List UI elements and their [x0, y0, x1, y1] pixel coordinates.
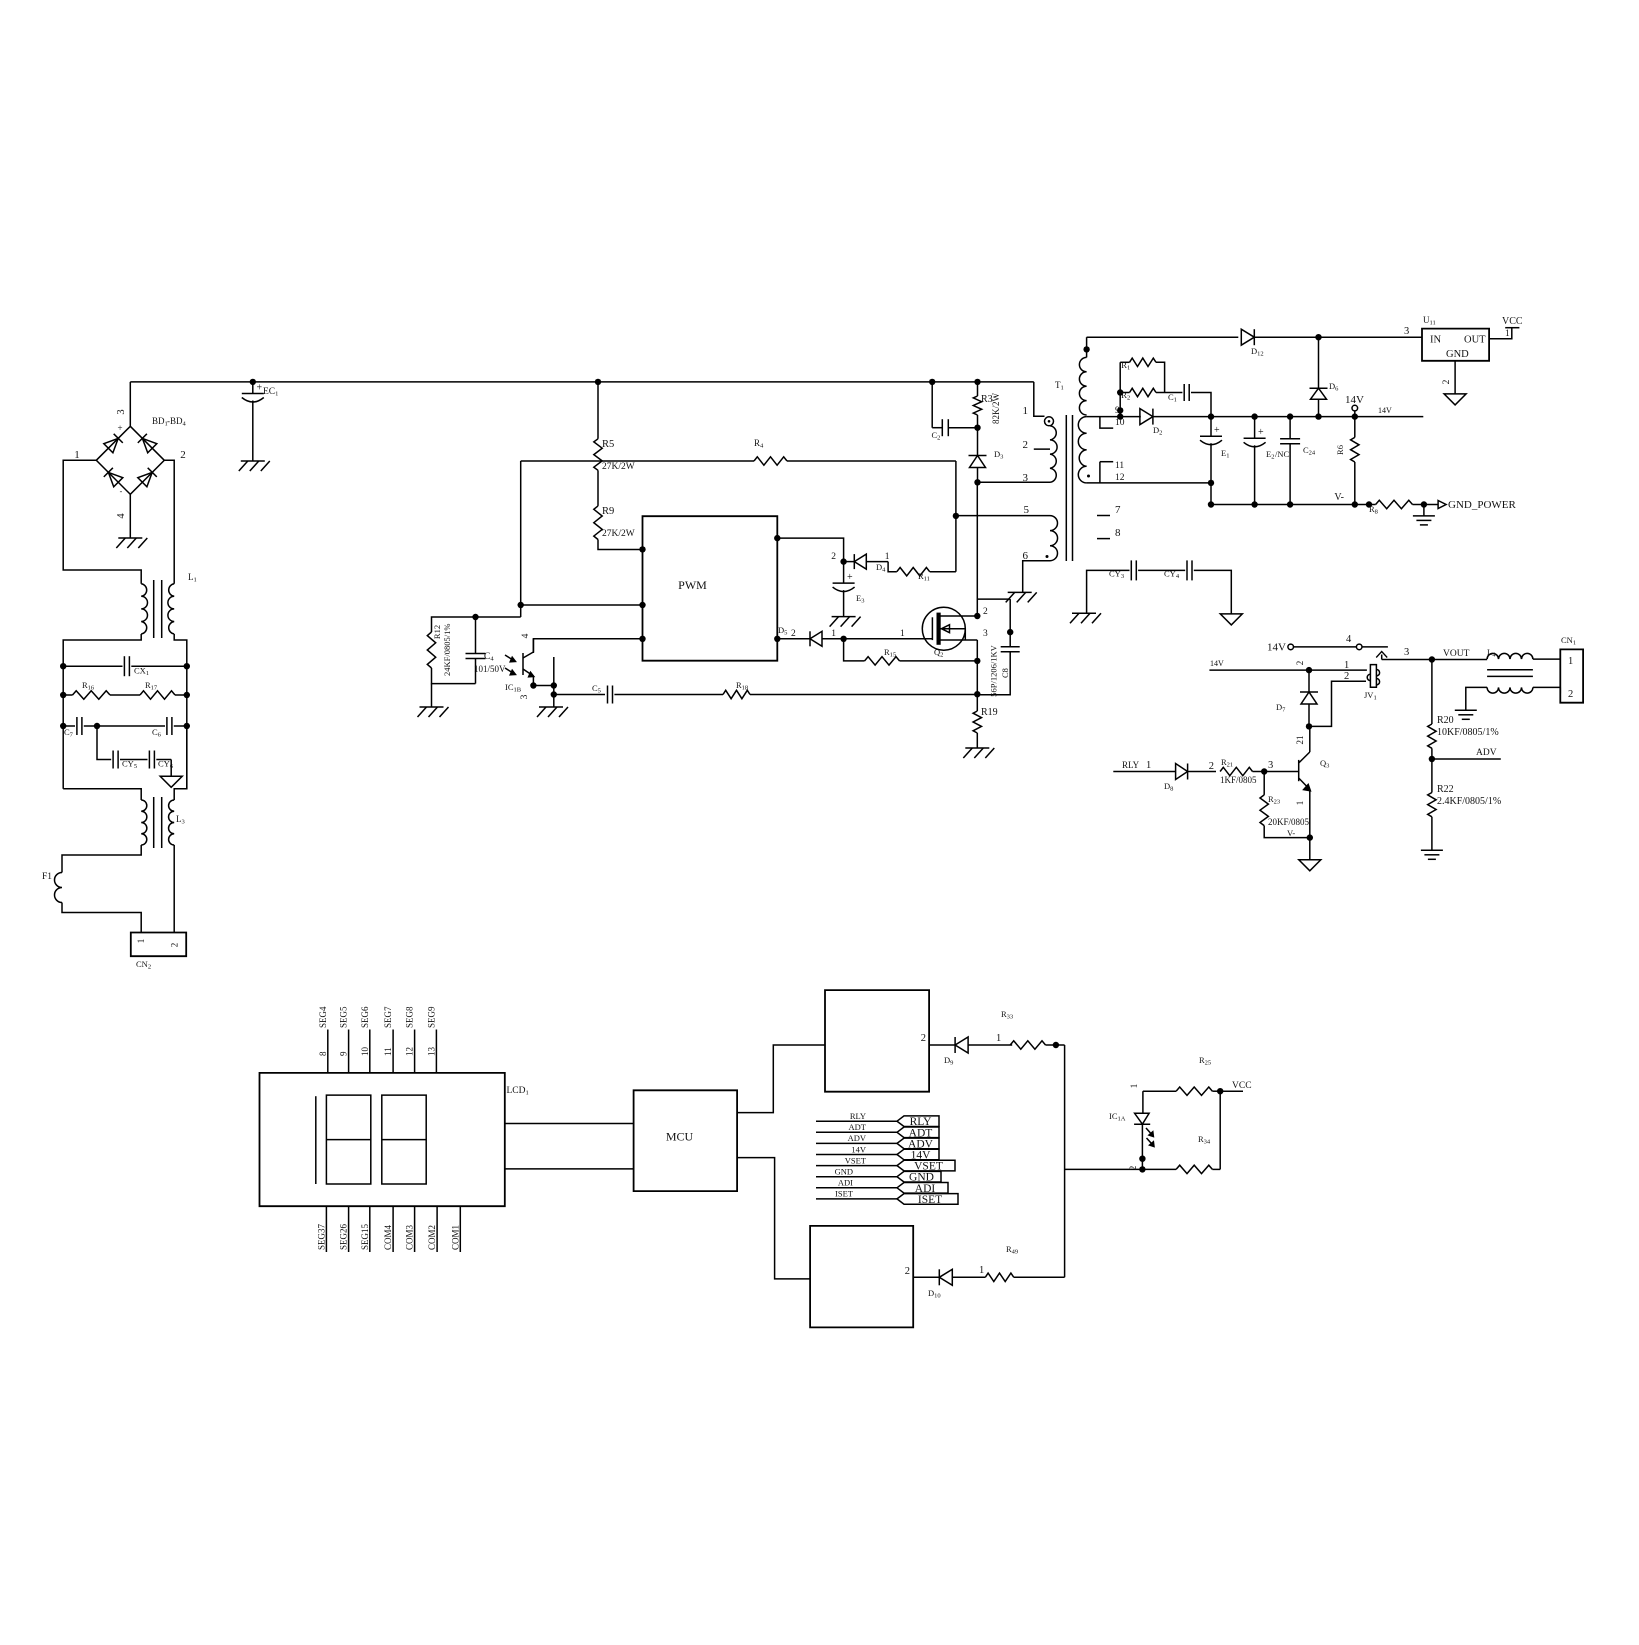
svg-text:2: 2	[170, 943, 180, 948]
svg-text:2: 2	[1023, 439, 1029, 451]
svg-text:1KF/0805: 1KF/0805	[1220, 775, 1257, 785]
svg-text:R6: R6	[1335, 445, 1345, 455]
svg-text:R9: R9	[602, 506, 614, 517]
svg-text:13: 13	[426, 1047, 436, 1057]
svg-text:SEG37: SEG37	[316, 1223, 326, 1250]
svg-text:COM3: COM3	[405, 1224, 415, 1250]
svg-text:24KF/0805/1%: 24KF/0805/1%	[442, 624, 452, 676]
svg-text:3: 3	[116, 409, 127, 414]
svg-text:GND: GND	[1446, 349, 1469, 360]
svg-text:SEG15: SEG15	[360, 1223, 370, 1250]
svg-text:3: 3	[983, 629, 988, 639]
svg-text:20KF/0805: 20KF/0805	[1268, 817, 1310, 827]
svg-text:4: 4	[116, 513, 127, 519]
svg-text:R20: R20	[1437, 715, 1454, 726]
svg-text:1: 1	[885, 552, 890, 562]
svg-text:/NC: /NC	[1275, 449, 1290, 459]
svg-text:1: 1	[1129, 1084, 1139, 1089]
svg-text:GND: GND	[835, 1167, 853, 1177]
svg-text:27K/2W: 27K/2W	[602, 462, 635, 472]
svg-text:R22: R22	[1437, 784, 1454, 795]
svg-text:LCD1: LCD1	[507, 1086, 529, 1097]
svg-text:1: 1	[1505, 329, 1510, 339]
svg-text:3: 3	[1404, 647, 1409, 658]
svg-text:RLY: RLY	[850, 1111, 866, 1121]
svg-text:2: 2	[1568, 689, 1573, 700]
svg-text:14V: 14V	[1378, 406, 1392, 415]
svg-text:PWM: PWM	[678, 578, 707, 592]
svg-text:14V: 14V	[1345, 394, 1364, 406]
svg-text:2: 2	[1344, 671, 1349, 682]
svg-text:-: -	[120, 487, 123, 496]
svg-text:2: 2	[1295, 661, 1305, 666]
svg-text:SEG4: SEG4	[318, 1006, 328, 1028]
svg-text:82K/2W: 82K/2W	[991, 393, 1001, 425]
svg-text:2.4KF/0805/1%: 2.4KF/0805/1%	[1437, 796, 1501, 807]
svg-text:COM1: COM1	[450, 1225, 460, 1250]
svg-text:C8: C8	[1000, 668, 1010, 678]
svg-text:4: 4	[521, 633, 531, 638]
svg-text:VSET: VSET	[845, 1155, 867, 1165]
svg-text:1: 1	[900, 629, 905, 639]
svg-text:+: +	[1214, 425, 1220, 436]
svg-text:+: +	[1258, 427, 1264, 438]
svg-text:+: +	[117, 423, 122, 433]
svg-text:GND_POWER: GND_POWER	[1448, 499, 1516, 511]
svg-text:101/50V: 101/50V	[474, 664, 506, 674]
svg-text:ADT: ADT	[849, 1122, 867, 1132]
svg-text:9: 9	[339, 1051, 349, 1056]
svg-text:SEG26: SEG26	[339, 1223, 349, 1250]
svg-text:8: 8	[318, 1051, 328, 1056]
svg-text:V-: V-	[1334, 492, 1344, 503]
svg-text:ADV: ADV	[1476, 748, 1497, 758]
svg-text:10KF/0805/1%: 10KF/0805/1%	[1437, 727, 1499, 738]
svg-text:VCC: VCC	[1502, 316, 1523, 327]
svg-text:21: 21	[1295, 736, 1305, 745]
svg-text:2: 2	[921, 1033, 926, 1044]
svg-text:VOUT: VOUT	[1443, 649, 1470, 659]
svg-text:RLY: RLY	[1122, 760, 1140, 770]
svg-text:10: 10	[360, 1047, 370, 1057]
svg-text:14V: 14V	[851, 1144, 867, 1154]
svg-text:2: 2	[791, 629, 796, 639]
svg-text:3: 3	[1023, 472, 1029, 484]
svg-text:+: +	[847, 572, 853, 583]
svg-text:F1: F1	[42, 872, 52, 882]
svg-text:ADI: ADI	[838, 1178, 853, 1188]
svg-text:1: 1	[74, 449, 80, 461]
svg-text:SEG5: SEG5	[339, 1006, 349, 1028]
svg-text:MCU: MCU	[666, 1130, 694, 1144]
svg-text:14V: 14V	[1267, 642, 1286, 654]
svg-text:1: 1	[979, 1265, 984, 1276]
svg-text:27K/2W: 27K/2W	[602, 529, 635, 539]
svg-text:11: 11	[383, 1047, 393, 1056]
svg-text:SEG6: SEG6	[360, 1006, 370, 1028]
svg-text:R19: R19	[981, 707, 998, 718]
svg-text:1: 1	[1568, 656, 1573, 667]
svg-text:3: 3	[1268, 760, 1273, 771]
svg-text:6: 6	[1023, 550, 1029, 562]
svg-text:2: 2	[1442, 379, 1452, 384]
svg-text:1: 1	[136, 939, 146, 944]
svg-text:V-: V-	[1287, 828, 1295, 838]
svg-text:1: 1	[1344, 660, 1349, 671]
svg-text:5: 5	[1024, 504, 1030, 516]
svg-text:R5: R5	[602, 439, 614, 450]
svg-text:SEG7: SEG7	[383, 1006, 393, 1028]
svg-text:1: 1	[1146, 760, 1151, 771]
svg-text:2: 2	[983, 607, 988, 617]
svg-text:2: 2	[831, 552, 836, 562]
svg-text:2: 2	[1128, 1166, 1138, 1171]
svg-text:2: 2	[1209, 761, 1214, 772]
svg-text:ISET: ISET	[835, 1189, 854, 1199]
svg-text:3: 3	[520, 694, 530, 699]
svg-text:COM2: COM2	[427, 1225, 437, 1250]
svg-text:8: 8	[1115, 527, 1121, 539]
svg-text:7: 7	[1115, 504, 1121, 516]
svg-text:VCC: VCC	[1232, 1081, 1252, 1091]
svg-text:1: 1	[1023, 405, 1029, 417]
svg-text:+: +	[257, 383, 263, 394]
svg-text:ISET: ISET	[918, 1194, 942, 1206]
svg-text:OUT: OUT	[1464, 335, 1486, 346]
svg-text:SEG9: SEG9	[426, 1006, 436, 1028]
svg-text:56P/1206/1KV: 56P/1206/1KV	[989, 644, 999, 696]
svg-text:IN: IN	[1430, 335, 1441, 346]
svg-text:COM4: COM4	[383, 1224, 393, 1250]
svg-text:11: 11	[1115, 461, 1124, 471]
svg-text:SEG8: SEG8	[405, 1006, 415, 1028]
svg-text:3: 3	[1404, 326, 1409, 337]
svg-text:14V: 14V	[1210, 659, 1224, 668]
svg-text:ADV: ADV	[848, 1133, 867, 1143]
svg-text:4: 4	[1346, 634, 1352, 645]
svg-text:2: 2	[905, 1266, 910, 1277]
svg-text:12: 12	[1115, 473, 1125, 483]
svg-text:R12: R12	[432, 625, 442, 639]
svg-text:1: 1	[996, 1033, 1001, 1044]
svg-text:2: 2	[180, 449, 186, 461]
svg-text:12: 12	[405, 1047, 415, 1056]
svg-text:1: 1	[1295, 801, 1305, 806]
svg-text:1: 1	[831, 629, 836, 639]
